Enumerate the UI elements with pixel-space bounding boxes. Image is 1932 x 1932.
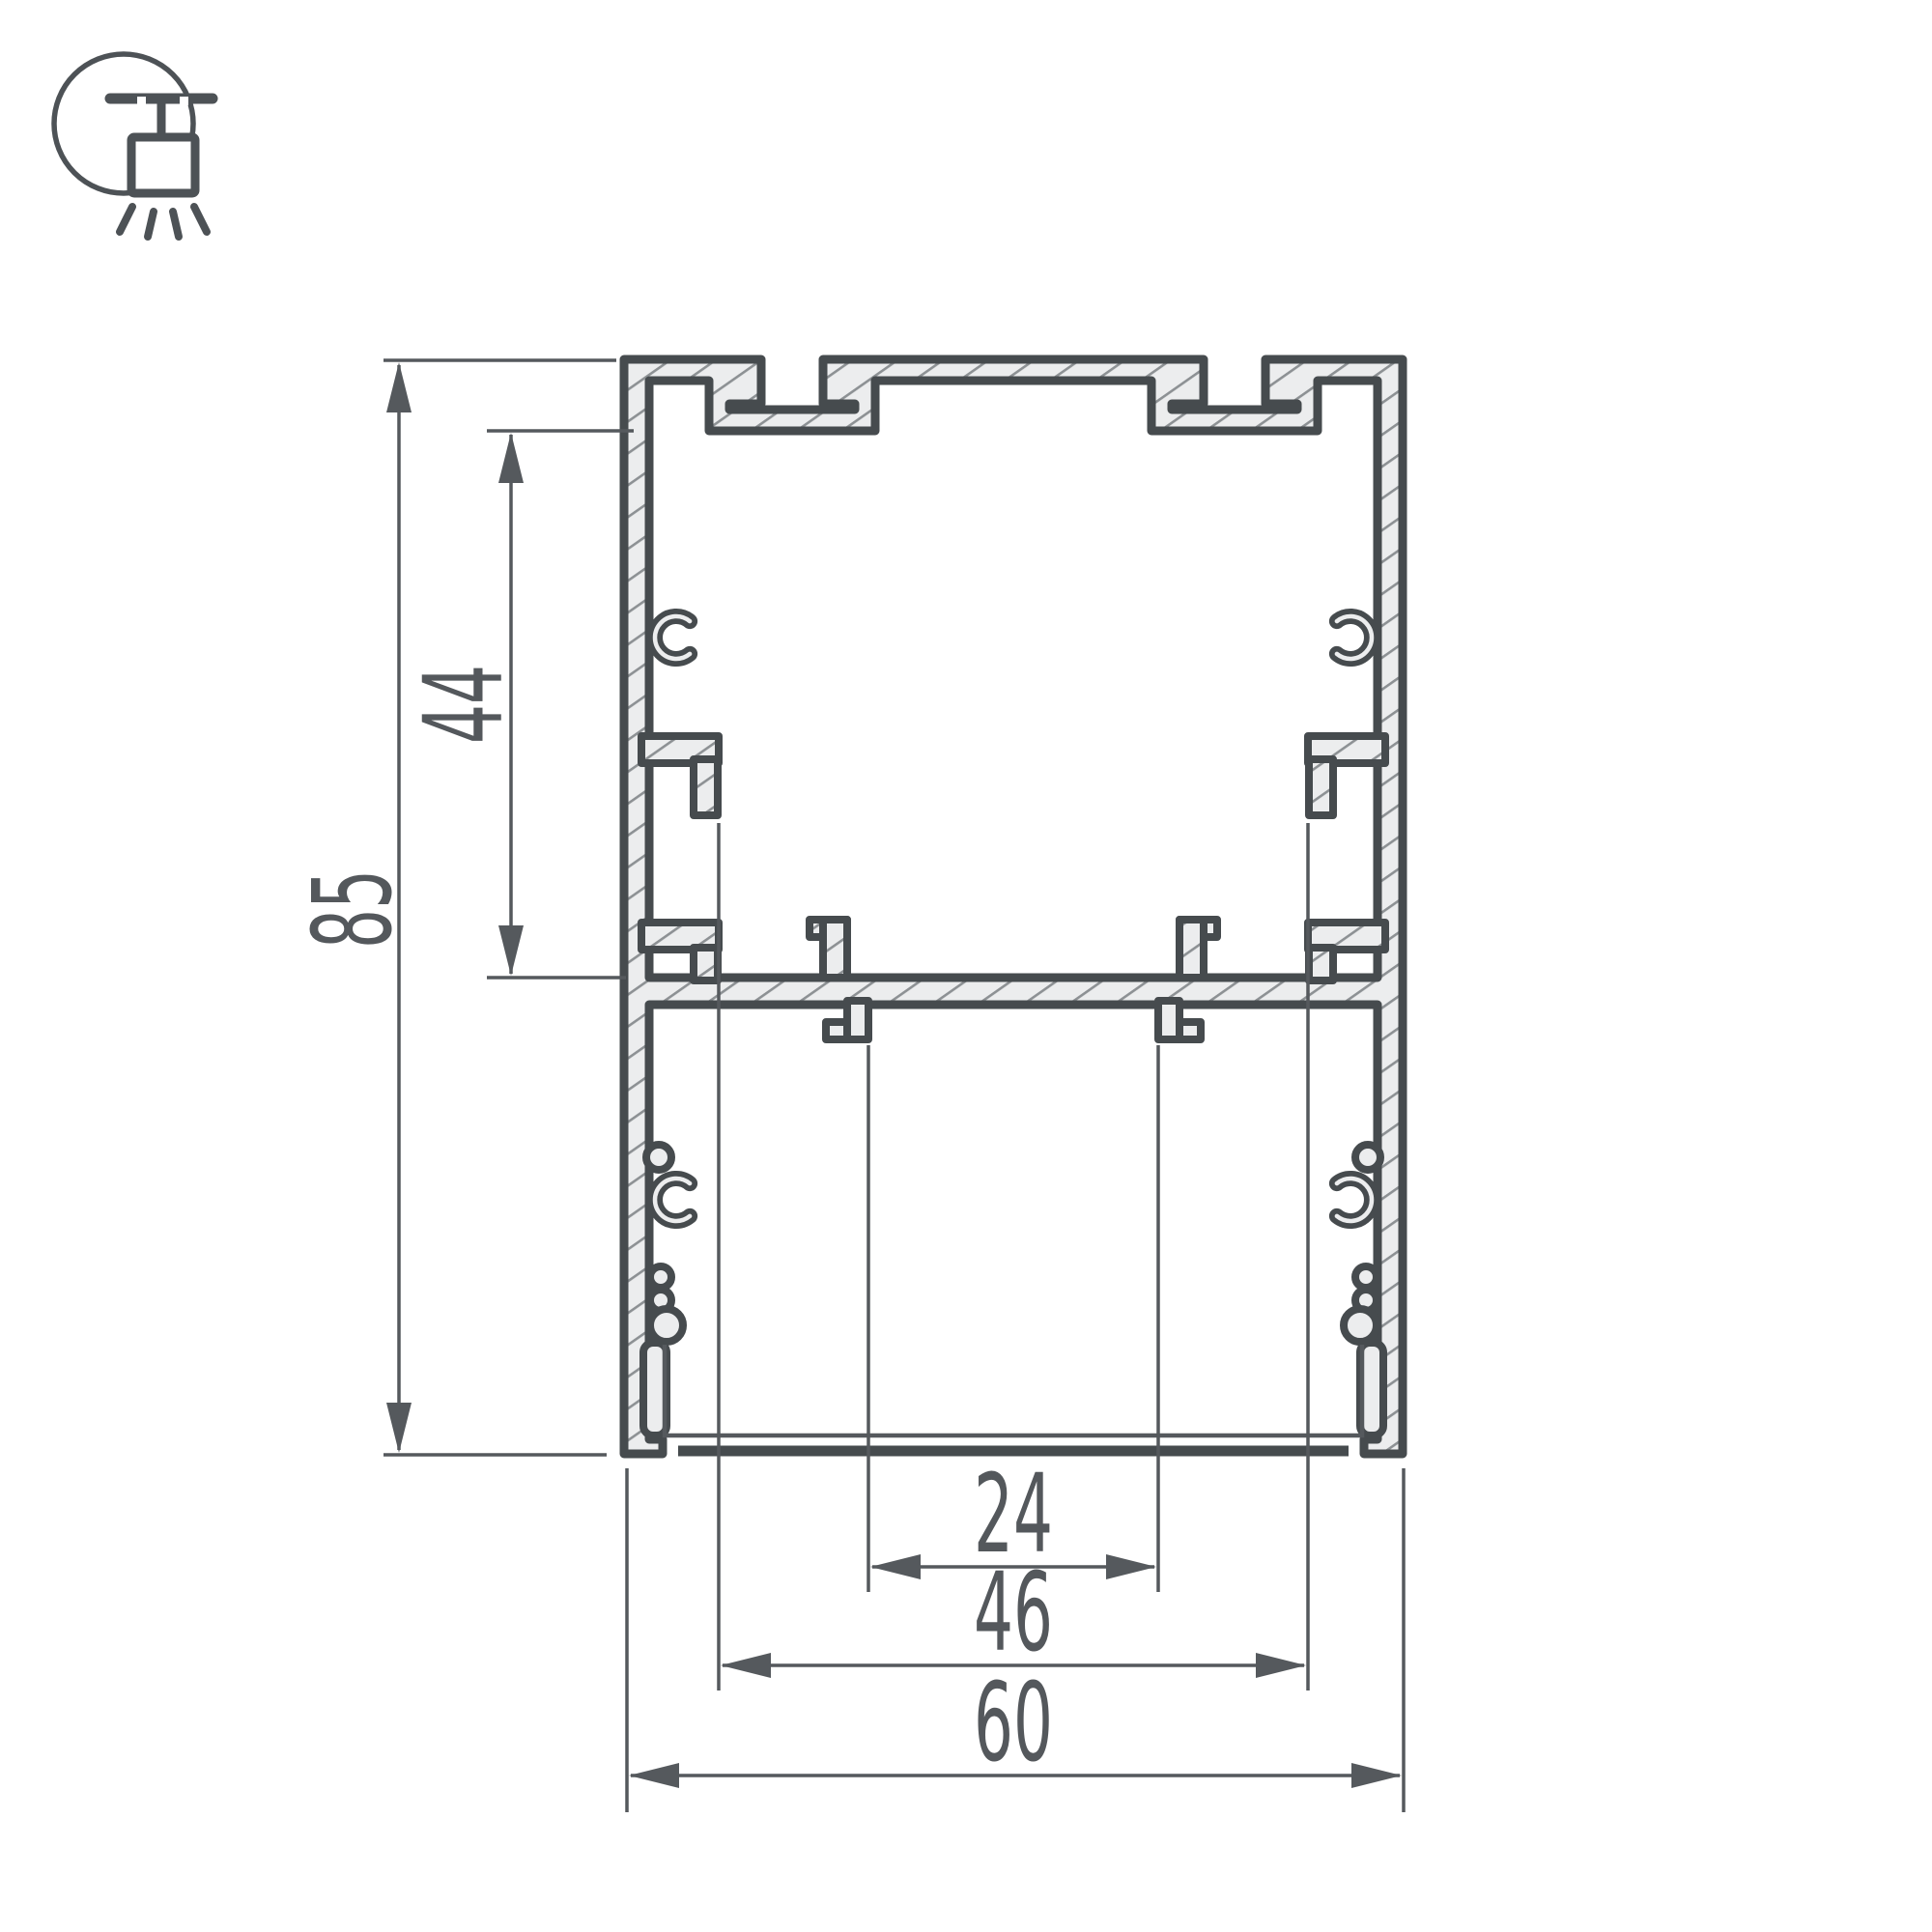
icon-bar-notch: [180, 97, 188, 105]
left-j-hook-foot: [826, 1022, 847, 1039]
arrow-left: [629, 1763, 679, 1788]
icon-lamp-body: [131, 137, 195, 193]
profile-body: [624, 359, 1403, 1454]
arrow-down: [386, 1403, 412, 1453]
arrow-left: [721, 1653, 771, 1678]
dimensions: [384, 360, 1404, 1812]
lower-chamber-features: [643, 1145, 1383, 1435]
arrow-down: [498, 925, 524, 976]
left-divider-tab: [823, 920, 847, 978]
icon-light-rays: [120, 207, 207, 237]
technical-drawing-page: 85 44 24 46 60: [0, 0, 1932, 1932]
right-j-hook-foot: [1179, 1022, 1201, 1039]
arrow-right: [1351, 1763, 1402, 1788]
diffuser-cover: [665, 1345, 1362, 1451]
diffuser-outline: [665, 1345, 1362, 1435]
arrow-right: [1256, 1653, 1306, 1678]
label-overall-width: 60: [974, 1661, 1053, 1786]
right-mid-hook-leg: [1309, 759, 1333, 815]
arrow-left: [870, 1554, 921, 1579]
label-overall-height: 85: [291, 869, 416, 949]
arrow-up: [386, 362, 412, 412]
screw-bosses: [655, 616, 1372, 1221]
left-wall-bulb: [650, 1309, 683, 1342]
icon-bar-notch: [137, 97, 146, 105]
profile-cross-section: [624, 359, 1403, 1454]
label-inner-width: 46: [974, 1550, 1053, 1676]
right-wall-bulb: [1344, 1309, 1377, 1342]
dimension-overall-height: [384, 360, 616, 1455]
right-lower-hook-leg: [1309, 948, 1333, 980]
left-wall-wave: [650, 1266, 671, 1288]
left-wall-bump: [646, 1145, 671, 1170]
right-divider-tab: [1179, 920, 1204, 978]
right-wall-wave: [1355, 1266, 1377, 1288]
arrow-right: [1106, 1554, 1156, 1579]
profile-drawing-svg: 85 44 24 46 60: [0, 0, 1932, 1932]
left-lower-hook-leg: [694, 948, 718, 980]
arrow-up: [498, 433, 524, 483]
label-upper-cavity-depth: 44: [402, 665, 527, 744]
pendant-ceiling-light-icon: [54, 54, 213, 237]
right-wall-bump: [1355, 1145, 1380, 1170]
upper-chamber-features: [641, 736, 1385, 980]
left-mid-hook-leg: [694, 759, 718, 815]
